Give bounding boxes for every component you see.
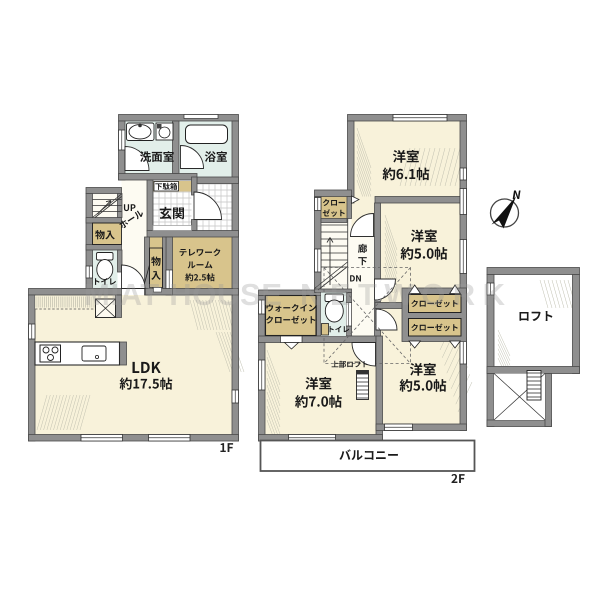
svg-text:MIAT HOUSE: MIAT HOUSE — [84, 277, 282, 312]
svg-text:NETWORK: NETWORK — [300, 277, 506, 312]
